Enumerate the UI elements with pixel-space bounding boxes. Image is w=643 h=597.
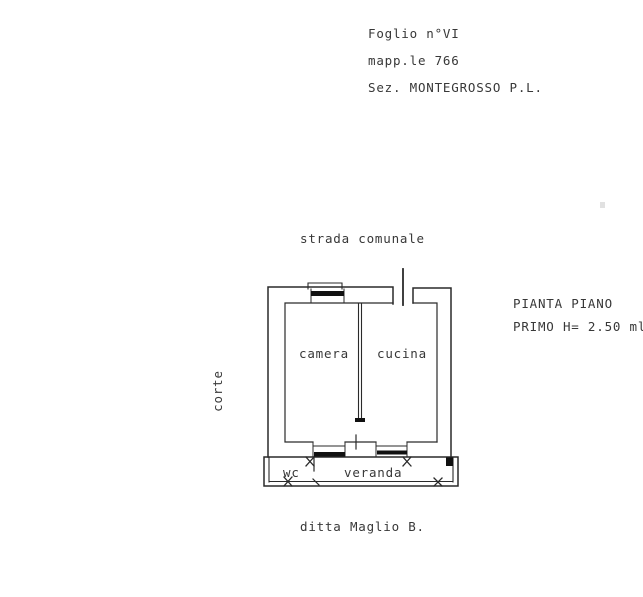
wall-outer-top-right — [413, 288, 451, 457]
wall-inner-left-top — [285, 303, 393, 441]
wall-post-veranda-right — [446, 458, 453, 467]
room-label-veranda: veranda — [344, 466, 402, 480]
courtyard-label: corte — [211, 370, 225, 412]
footer-company-label: ditta Maglio B. — [300, 520, 425, 534]
window-cucina-bar — [377, 451, 407, 455]
scan-smudge — [600, 202, 605, 208]
partition-end-cap — [355, 418, 365, 422]
room-label-cucina: cucina — [377, 347, 427, 361]
partition-camera-cucina — [359, 303, 362, 419]
room-label-wc: wc — [283, 466, 300, 480]
window-top-sill — [308, 283, 342, 289]
room-label-camera: camera — [299, 347, 349, 361]
window-camera-bar — [314, 452, 345, 457]
window-top-bar — [311, 291, 344, 296]
door-mark-camera — [306, 457, 314, 466]
door-mark-cucina — [403, 457, 411, 466]
window-cucina-jambs — [376, 442, 407, 457]
scanned-floor-plan-sheet: Foglio n°VI mapp.le 766 Sez. MONTEGROSSO… — [0, 0, 643, 597]
floor-plan-drawing — [0, 0, 643, 597]
wall-inner-top-right — [413, 303, 437, 442]
wall-outer-left-top — [268, 287, 393, 457]
